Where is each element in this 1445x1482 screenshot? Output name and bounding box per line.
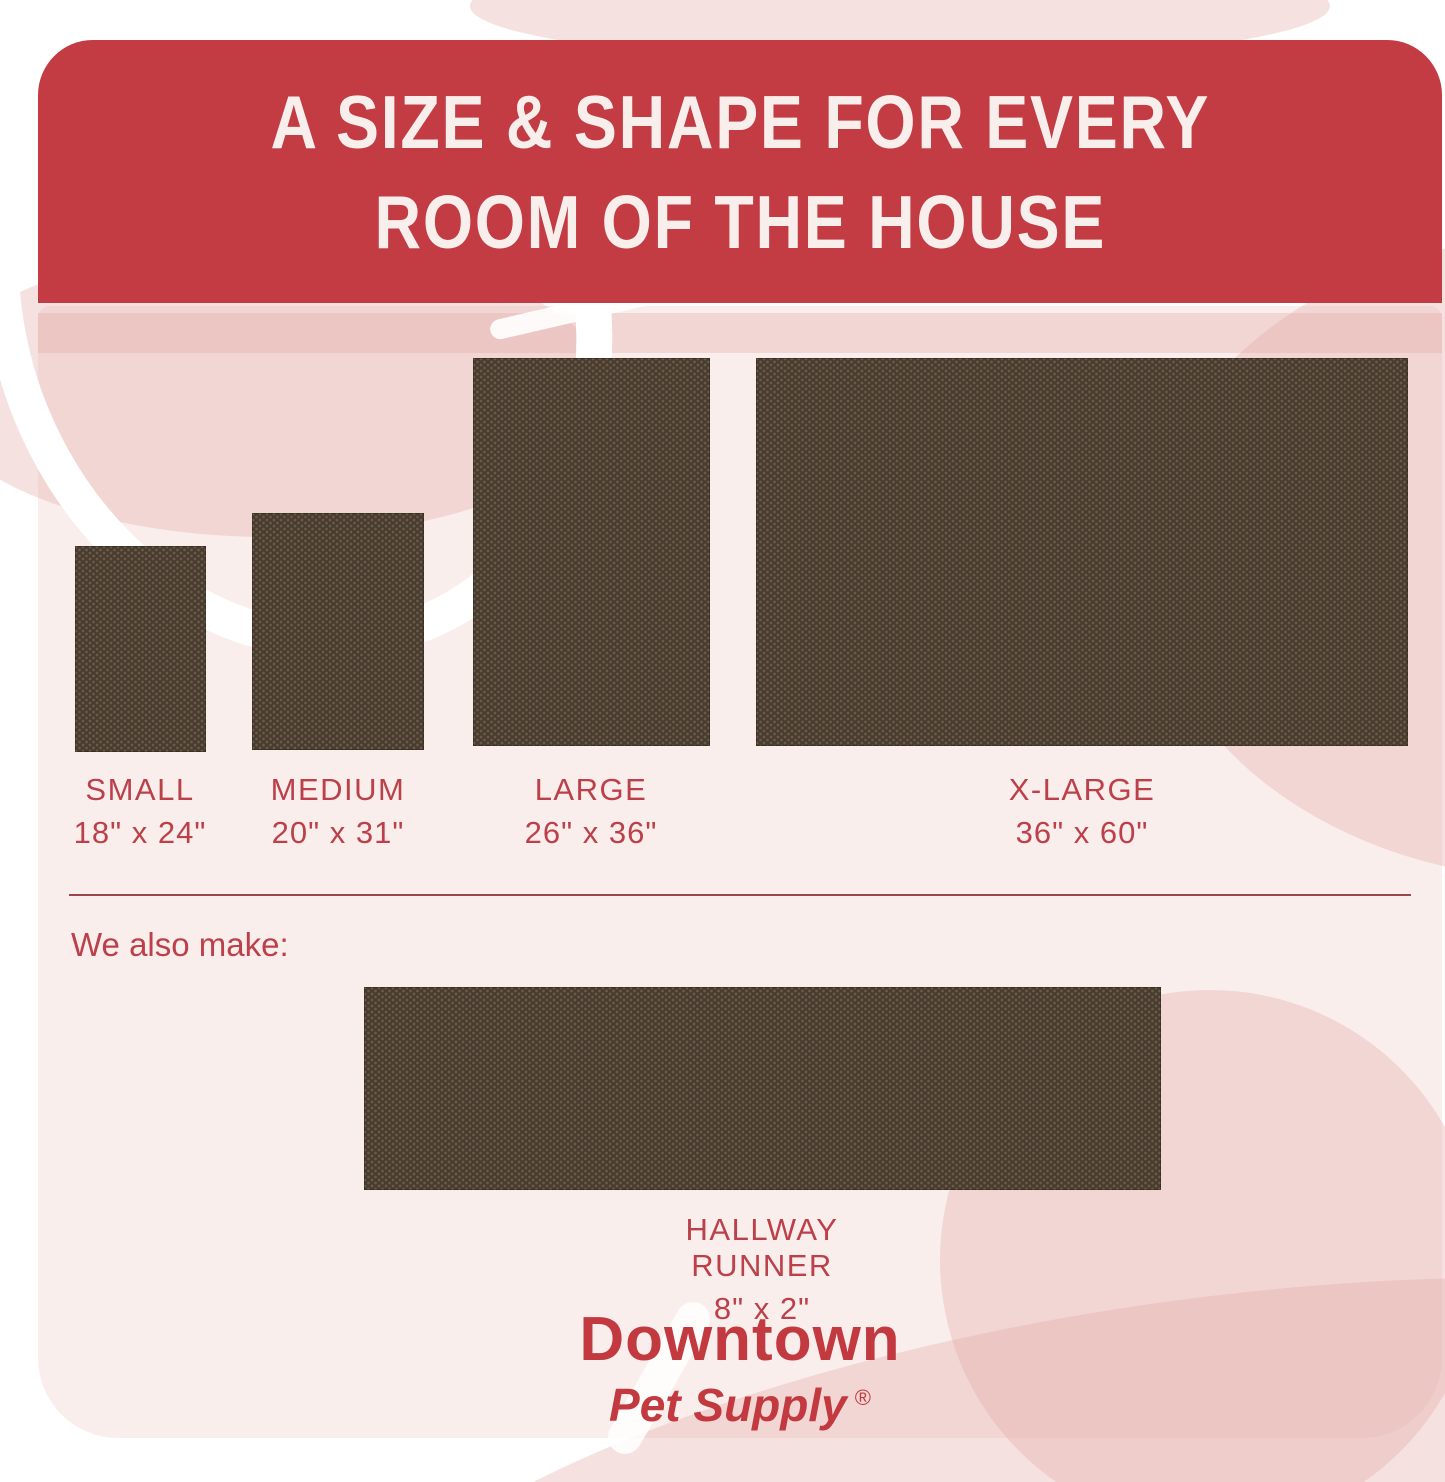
mat-swatch-xlarge — [756, 358, 1408, 746]
size-label-large: LARGE 26" x 36" — [441, 772, 741, 851]
infographic-poster: A SIZE & SHAPE FOR EVERY ROOM OF THE HOU… — [0, 0, 1445, 1482]
size-label-xlarge: X-LARGE 36" x 60" — [932, 772, 1232, 851]
divider-line — [69, 894, 1411, 896]
brand-name-secondary-text: Pet Supply — [609, 1379, 847, 1431]
mat-swatch-large — [473, 358, 710, 746]
mat-swatch-small — [75, 546, 206, 752]
size-name: X-LARGE — [932, 772, 1232, 808]
brand-name-secondary: Pet Supply® — [440, 1378, 1040, 1432]
poster-title-line1: A SIZE & SHAPE FOR EVERY — [270, 72, 1210, 172]
brand-name-primary: Downtown — [440, 1304, 1040, 1375]
size-dimensions: 26" x 36" — [441, 815, 741, 851]
poster-title: A SIZE & SHAPE FOR EVERY ROOM OF THE HOU… — [270, 72, 1210, 272]
size-name: HALLWAY RUNNER — [612, 1212, 912, 1284]
size-name: LARGE — [441, 772, 741, 808]
brand-logo: Downtown Pet Supply® — [440, 1304, 1040, 1432]
header-banner: A SIZE & SHAPE FOR EVERY ROOM OF THE HOU… — [38, 40, 1442, 303]
registered-trademark-icon: ® — [855, 1385, 871, 1410]
poster-title-line2: ROOM OF THE HOUSE — [270, 172, 1210, 272]
size-dimensions: 36" x 60" — [932, 815, 1232, 851]
mat-swatch-hallway-runner — [364, 987, 1161, 1190]
mat-swatch-medium — [252, 513, 424, 750]
also-make-text: We also make: — [71, 926, 289, 964]
